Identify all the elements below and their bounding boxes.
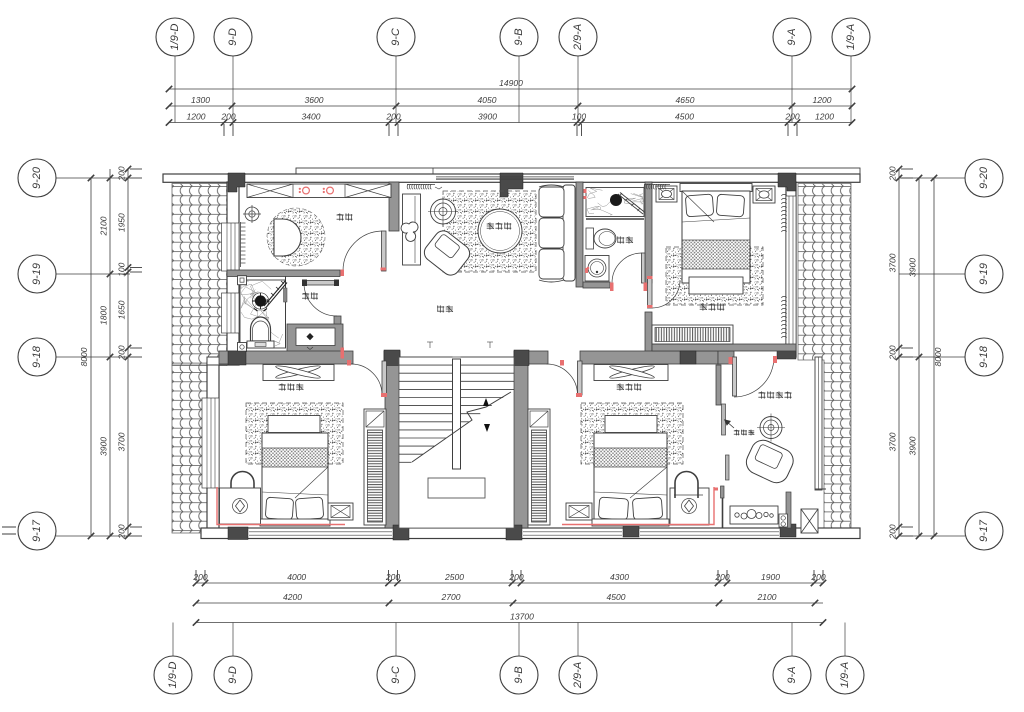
svg-text:200: 200 (117, 166, 127, 181)
svg-text:1650: 1650 (117, 300, 127, 319)
svg-text:200: 200 (117, 345, 127, 360)
svg-text:200: 200 (117, 524, 127, 539)
svg-text:200: 200 (220, 112, 235, 122)
svg-text:9-18: 9-18 (31, 345, 43, 368)
svg-text:9-A: 9-A (786, 666, 798, 683)
svg-text:3400: 3400 (302, 112, 321, 122)
svg-text:2100: 2100 (757, 592, 777, 602)
svg-text:9-17: 9-17 (31, 519, 43, 542)
svg-text:2700: 2700 (441, 592, 461, 602)
svg-text:3700: 3700 (117, 432, 127, 451)
svg-text:200: 200 (888, 345, 898, 360)
svg-text:3600: 3600 (305, 95, 324, 105)
svg-text:1/9-A: 1/9-A (839, 662, 851, 688)
svg-text:1/9-D: 1/9-D (167, 661, 179, 688)
svg-text:200: 200 (810, 572, 825, 582)
svg-text:1300: 1300 (191, 95, 210, 105)
svg-text:4650: 4650 (676, 95, 695, 105)
svg-text:4300: 4300 (610, 572, 629, 582)
svg-text:1200: 1200 (187, 112, 206, 122)
svg-text:1/9-D: 1/9-D (169, 23, 181, 50)
svg-text:9-B: 9-B (513, 666, 525, 683)
svg-text:200: 200 (714, 572, 729, 582)
svg-text:4050: 4050 (478, 95, 497, 105)
svg-text:1900: 1900 (761, 572, 780, 582)
svg-text:13700: 13700 (510, 612, 534, 622)
svg-text:2500: 2500 (444, 572, 464, 582)
svg-text:200: 200 (508, 572, 523, 582)
svg-text:1950: 1950 (117, 213, 127, 232)
svg-text:200: 200 (888, 166, 898, 181)
svg-text:9-D: 9-D (227, 28, 239, 46)
svg-text:9-19: 9-19 (31, 263, 43, 285)
svg-text:3900: 3900 (478, 112, 497, 122)
svg-text:9-C: 9-C (390, 666, 402, 684)
svg-text:9-D: 9-D (227, 666, 239, 684)
svg-text:3900: 3900 (908, 436, 918, 455)
svg-text:9-A: 9-A (786, 28, 798, 45)
svg-text:1800: 1800 (99, 306, 109, 325)
svg-text:2100: 2100 (99, 216, 109, 236)
svg-text:2/9-A: 2/9-A (572, 662, 584, 689)
svg-text:1200: 1200 (815, 112, 834, 122)
svg-text:9-C: 9-C (390, 28, 402, 46)
svg-text:1200: 1200 (813, 95, 832, 105)
svg-text:1/9-A: 1/9-A (845, 24, 857, 50)
svg-text:4200: 4200 (283, 592, 302, 602)
svg-text:200: 200 (385, 572, 400, 582)
svg-text:3900: 3900 (99, 437, 109, 456)
svg-text:9-17: 9-17 (978, 519, 990, 542)
svg-text:9-B: 9-B (513, 28, 525, 45)
svg-text:9-20: 9-20 (978, 166, 990, 189)
svg-text:9-18: 9-18 (978, 345, 990, 368)
svg-text:4500: 4500 (675, 112, 694, 122)
svg-text:100: 100 (117, 262, 127, 276)
svg-text:200: 200 (192, 572, 207, 582)
svg-text:200: 200 (888, 524, 898, 539)
svg-text:3700: 3700 (888, 253, 898, 272)
svg-text:9-19: 9-19 (978, 263, 990, 285)
svg-text:4500: 4500 (607, 592, 626, 602)
svg-text:9-20: 9-20 (31, 166, 43, 189)
svg-text:4000: 4000 (287, 572, 306, 582)
svg-text:14900: 14900 (499, 78, 523, 88)
svg-text:2/9-A: 2/9-A (572, 24, 584, 51)
svg-text:100: 100 (572, 112, 586, 122)
svg-text:3700: 3700 (888, 432, 898, 451)
svg-text:200: 200 (385, 112, 400, 122)
